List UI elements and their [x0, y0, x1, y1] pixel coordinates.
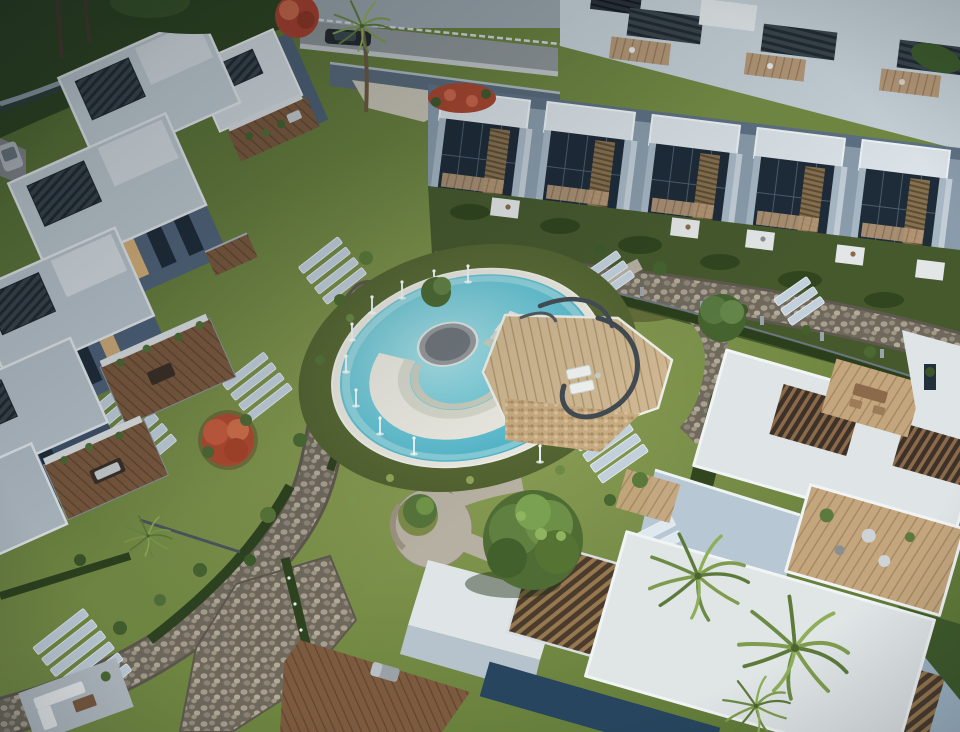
aerial-render-stage — [0, 0, 960, 732]
aerial-render — [0, 0, 960, 732]
vignette — [0, 0, 960, 732]
